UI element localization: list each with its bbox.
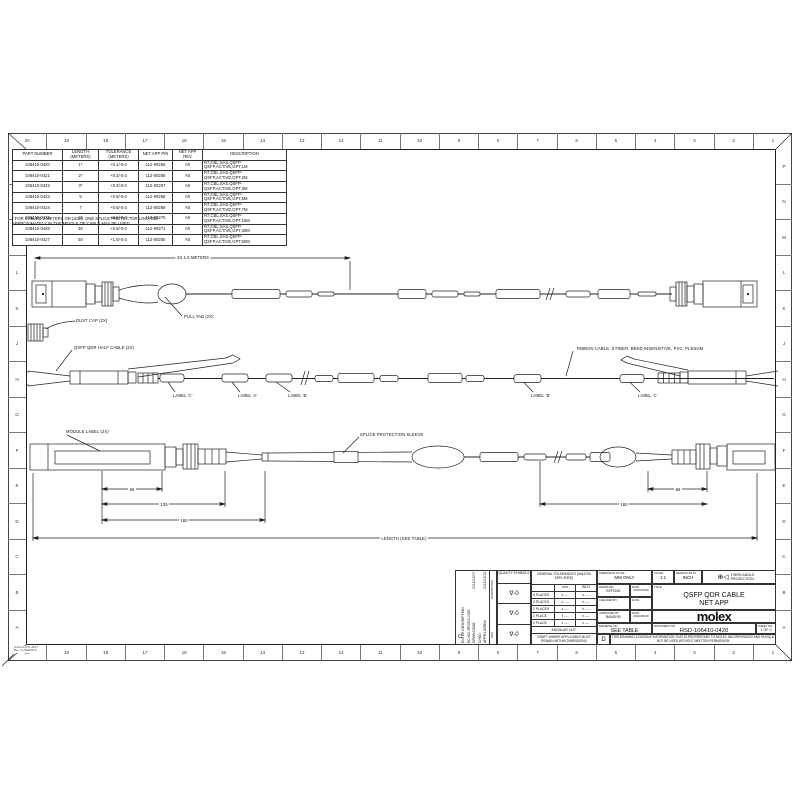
zone-number: 6 bbox=[558, 645, 597, 661]
drawn-by-value: EEFUNG bbox=[598, 589, 629, 593]
ribbon-cable-callout: RIBBON CABLE, 8 FIBER, BEND INSENSITIVE,… bbox=[577, 346, 703, 351]
table-cell: +1.0/-0.0 bbox=[99, 235, 139, 246]
zone-letter: H bbox=[776, 362, 792, 398]
zone-letter: E bbox=[776, 469, 792, 505]
half-cable-callout: QSFP QDR HALF CABLE (2X) bbox=[74, 345, 134, 350]
table-cell: 106410-0420 bbox=[13, 160, 63, 171]
zone-letter: A bbox=[8, 611, 26, 646]
zone-number: 14 bbox=[244, 133, 283, 149]
zone-number: 20 bbox=[8, 133, 47, 149]
zone-letter: H bbox=[8, 362, 26, 398]
zone-letter: A bbox=[776, 611, 792, 646]
zone-number: 3 bbox=[675, 645, 714, 661]
checked-by-label: CHECKED BY bbox=[598, 598, 629, 602]
zone-letter: L bbox=[776, 256, 792, 292]
zone-strip-bottom: 2019181716151413121110987654321 bbox=[8, 645, 792, 661]
col-mm: mm bbox=[555, 585, 575, 591]
zone-number: 11 bbox=[361, 645, 400, 661]
molex-logo: molex bbox=[697, 611, 732, 623]
zone-number: 13 bbox=[283, 645, 322, 661]
zone-number: 16 bbox=[165, 645, 204, 661]
projection-label: THIRD ANGLE PROJECTION bbox=[731, 573, 761, 582]
table-footnote: * FOR CABLES 3 METERS OR LESS, ONE SPLIC… bbox=[12, 216, 167, 227]
dust-cap-callout: DUST CAP (2X) bbox=[76, 318, 107, 323]
zone-number: 3 bbox=[675, 133, 714, 149]
zone-number: 6 bbox=[558, 133, 597, 149]
length-see-table: LENGTH (SEE TABLE) bbox=[380, 536, 428, 541]
module-label-callout: MODULE LABEL (2X) bbox=[66, 429, 109, 434]
table-cell: 112-00269 bbox=[139, 203, 173, 214]
zone-number: 1 bbox=[754, 645, 792, 661]
label-c-left: LABEL 'C' bbox=[173, 393, 193, 398]
dimension-style-cell: DIMENSION STYLE MM ONLY bbox=[597, 570, 652, 584]
table-cell: R7,CBL,SAS,QSFP-QSFP,ACTIVE,OPT,15M bbox=[203, 213, 287, 224]
table-cell: 106410-0424 bbox=[13, 203, 63, 214]
dim-135: 135 bbox=[159, 502, 169, 507]
approved-by-value: BANDREI bbox=[598, 615, 629, 619]
zone-number: 8 bbox=[479, 645, 518, 661]
col-description: DESCRIPTION bbox=[203, 150, 287, 161]
dim-65-left: 65 bbox=[128, 487, 136, 492]
approved-by-cell: APPROVED BY BANDREI bbox=[597, 610, 630, 623]
table-cell: 106410-0427 bbox=[13, 235, 63, 246]
zone-letter: E bbox=[8, 469, 26, 505]
zone-letter: J bbox=[8, 327, 26, 363]
tolerance-row: 3 PLACES± ----± ---- bbox=[532, 599, 596, 606]
table-cell: +0.1/-0.0 bbox=[99, 160, 139, 171]
molex-logo-cell: molex bbox=[652, 610, 776, 623]
scale-value: 1:1 bbox=[653, 575, 673, 580]
approved-date-cell: DATE 2012/06/18 bbox=[630, 610, 652, 623]
quality-symbols-block: QUALITY SYMBOLS ∇-0∇-0∇-0 bbox=[497, 570, 531, 645]
drawing-title: QSFP QDR CABLE NET APP bbox=[653, 592, 775, 609]
tolerance-row: 4 PLACES± ----± ---- bbox=[532, 592, 596, 599]
label-b-right: LABEL 'B' bbox=[531, 393, 550, 398]
quality-symbol: ∇-0 bbox=[498, 625, 530, 644]
table-cell: 50 bbox=[63, 235, 99, 246]
dimension-style-value: MM ONLY bbox=[598, 575, 651, 580]
revision-description-label: DESCRIPTION bbox=[490, 580, 494, 599]
table-cell: R7,CBL,SAS,QSFP-QSFP,ACTIVE,OPT,30M bbox=[203, 224, 287, 235]
proprietary-note: THIS DRAWING CONTAINS INFORMATION THAT I… bbox=[611, 635, 775, 643]
zone-letter: D bbox=[8, 504, 26, 540]
tolerances-header: mm INCH bbox=[532, 585, 596, 592]
quality-symbols-label: QUALITY SYMBOLS bbox=[498, 571, 530, 584]
table-cell: 112-00280 bbox=[139, 235, 173, 246]
table-cell: +0.2/-0.0 bbox=[99, 171, 139, 182]
zone-number: 2 bbox=[715, 645, 754, 661]
zone-letter: P bbox=[776, 149, 792, 185]
zone-number: 9 bbox=[440, 645, 479, 661]
material-cell: MATERIAL NO. SEE TABLE bbox=[597, 623, 652, 634]
size-letter-cell: D bbox=[597, 634, 610, 645]
projection-cell: ⊕◁ THIRD ANGLE PROJECTION bbox=[702, 570, 776, 584]
draft-note: DRAFT WHERE APPLICABLE MUST REMAIN WITHI… bbox=[532, 634, 596, 643]
zone-letter: G bbox=[8, 398, 26, 434]
table-cell: 2* bbox=[63, 171, 99, 182]
table-cell: R7,CBL,SAS,QSFP-QSFP,ACTIVE,OPT,50M bbox=[203, 235, 287, 246]
table-cell: A0 bbox=[173, 224, 203, 235]
zone-number: 8 bbox=[479, 133, 518, 149]
zone-number: 9 bbox=[440, 133, 479, 149]
zone-number: 18 bbox=[87, 133, 126, 149]
overall-length-dimension: 2X 1.5 METERS bbox=[175, 255, 210, 260]
quality-symbol: ∇-0 bbox=[498, 604, 530, 624]
zone-number: 2 bbox=[715, 133, 754, 149]
zone-number: 19 bbox=[47, 645, 86, 661]
date-label: DATE bbox=[631, 598, 651, 602]
title-label: TITLE bbox=[653, 585, 775, 589]
table-cell: A0 bbox=[173, 213, 203, 224]
revision-rev-label: REV bbox=[490, 632, 494, 638]
sheet-no-cell: SHEET NO. 1 OF 2 bbox=[756, 623, 776, 634]
table-cell: 112-00266 bbox=[139, 171, 173, 182]
col-netapp-pn: NET APP P/N bbox=[139, 150, 173, 161]
zone-letter: K bbox=[8, 291, 26, 327]
drawn-date-value: 2012/03/30 bbox=[631, 589, 651, 593]
zone-number: 1 bbox=[754, 133, 792, 149]
table-cell: 112-00265 bbox=[139, 160, 173, 171]
table-cell: +0.5/-0.0 bbox=[99, 192, 139, 203]
checked-by-cell: CHECKED BY bbox=[597, 597, 630, 610]
table-cell: A0 bbox=[173, 192, 203, 203]
zone-number: 11 bbox=[361, 133, 400, 149]
table-cell: 112-00267 bbox=[139, 181, 173, 192]
table-cell: A0 bbox=[173, 160, 203, 171]
drawn-by-cell: DRAWN BY EEFUNG bbox=[597, 584, 630, 597]
zone-number: 10 bbox=[401, 645, 440, 661]
col-part-number: PART NUMBER bbox=[13, 150, 63, 161]
zone-strip-right: PNMLKJHGFEDCBA bbox=[776, 149, 792, 645]
col-tolerance: TOLERANCE (METERS) bbox=[99, 150, 139, 161]
label-b-left: LABEL 'B' bbox=[288, 393, 307, 398]
tolerances-title: GENERAL TOLERANCES (UNLESS SPECIFIED) bbox=[532, 571, 596, 585]
drawing-sheet: 2019181716151413121110987654321 20191817… bbox=[0, 0, 800, 800]
zone-number: 5 bbox=[597, 645, 636, 661]
pull-tab-callout: PULL TAB (2X) bbox=[184, 314, 214, 319]
frame-note: A-Frame D.P. AM-7 Rev. G 2012/01/17 bbox=[13, 646, 39, 653]
zone-number: 16 bbox=[165, 133, 204, 149]
parts-table: PART NUMBER LENGTH (METERS) TOLERANCE (M… bbox=[12, 149, 287, 246]
table-cell: R7,CBL,SAS,QSFP-QSFP,ACTIVE,OPT,1M bbox=[203, 160, 287, 171]
col-length: LENGTH (METERS) bbox=[63, 150, 99, 161]
dim-180-right: 180 bbox=[619, 502, 629, 507]
zone-letter: C bbox=[776, 540, 792, 576]
drawn-date-cell: DATE 2012/03/30 bbox=[630, 584, 652, 597]
design-units-value: INCH bbox=[675, 575, 701, 580]
tolerance-row: 1 PLACE± ----± ---- bbox=[532, 613, 596, 620]
design-units-cell: DESIGN UNITS INCH bbox=[674, 570, 702, 584]
table-row: 106410-04247+0.5/-0.0112-00269A0R7,CBL,S… bbox=[13, 203, 287, 214]
table-cell: 112-00268 bbox=[139, 192, 173, 203]
document-no-cell: DOCUMENT NO. RSD-106410-0420 bbox=[652, 623, 756, 634]
zone-number: 17 bbox=[126, 133, 165, 149]
zone-letter: N bbox=[776, 185, 792, 221]
sheet-no-value: 1 OF 2 bbox=[757, 628, 775, 632]
title-cell: TITLE QSFP QDR CABLE NET APP bbox=[652, 584, 776, 610]
zone-letter: F bbox=[8, 433, 26, 469]
size-letter: D bbox=[601, 637, 605, 643]
zone-number: 13 bbox=[283, 133, 322, 149]
zone-number: 15 bbox=[204, 133, 243, 149]
zone-letter: F bbox=[776, 433, 792, 469]
zone-number: 18 bbox=[87, 645, 126, 661]
zone-letter: B bbox=[776, 575, 792, 611]
zone-number: 4 bbox=[636, 133, 675, 149]
label-a: LABEL 'A' bbox=[238, 393, 257, 398]
dim-65-right: 65 bbox=[674, 487, 682, 492]
zone-number: 4 bbox=[636, 645, 675, 661]
zone-number: 17 bbox=[126, 645, 165, 661]
dim-180-left: 180 bbox=[179, 518, 189, 523]
table-row: 106410-042750+1.0/-0.0112-00280A0R7,CBL,… bbox=[13, 235, 287, 246]
label-c-right: LABEL 'C' bbox=[638, 393, 658, 398]
zone-number: 14 bbox=[244, 645, 283, 661]
table-cell: 7 bbox=[63, 203, 99, 214]
zone-number: 12 bbox=[322, 645, 361, 661]
table-cell: A0 bbox=[173, 203, 203, 214]
revision-letter: C bbox=[458, 634, 462, 640]
material-value: SEE TABLE bbox=[598, 628, 651, 634]
table-cell: 1* bbox=[63, 160, 99, 171]
zone-letter: J bbox=[776, 327, 792, 363]
table-cell: A0 bbox=[173, 171, 203, 182]
table-row: 106410-04235+0.5/-0.0112-00268A0R7,CBL,S… bbox=[13, 192, 287, 203]
table-cell: A0 bbox=[173, 235, 203, 246]
tolerance-row: 0 PLACE± ----± ---- bbox=[532, 620, 596, 627]
table-header-row: PART NUMBER LENGTH (METERS) TOLERANCE (M… bbox=[13, 150, 287, 161]
zone-number: 15 bbox=[204, 645, 243, 661]
table-row: 106410-04212*+0.2/-0.0112-00266A0R7,CBL,… bbox=[13, 171, 287, 182]
zone-letter: L bbox=[8, 256, 26, 292]
zone-number: 5 bbox=[597, 133, 636, 149]
table-cell: 106410-0423 bbox=[13, 192, 63, 203]
zone-letter: D bbox=[776, 504, 792, 540]
zone-letter: K bbox=[776, 291, 792, 327]
scale-cell: SCALE 1:1 bbox=[652, 570, 674, 584]
table-cell: R7,CBL,SAS,QSFP-QSFP,ACTIVE,OPT,3M bbox=[203, 181, 287, 192]
zone-number: 12 bbox=[322, 133, 361, 149]
quality-symbol: ∇-0 bbox=[498, 584, 530, 604]
zone-number: 7 bbox=[518, 645, 557, 661]
zone-letter: C bbox=[8, 540, 26, 576]
approved-date-value: 2012/06/18 bbox=[631, 615, 651, 619]
table-cell: 106410-0422 bbox=[13, 181, 63, 192]
table-cell: +0.3/-0.0 bbox=[99, 181, 139, 192]
table-cell: 106410-0421 bbox=[13, 171, 63, 182]
revision-entries: ENTER DESCRIPTIONEC NO: RF2903-0339DRWN:… bbox=[461, 572, 489, 643]
zone-number: 7 bbox=[518, 133, 557, 149]
proprietary-cell: THIS DRAWING CONTAINS INFORMATION THAT I… bbox=[610, 634, 776, 645]
general-tolerances-block: GENERAL TOLERANCES (UNLESS SPECIFIED) mm… bbox=[531, 570, 597, 645]
checked-date-cell: DATE bbox=[630, 597, 652, 610]
angular-tolerance: ANGULAR ±1/2° bbox=[532, 627, 596, 634]
col-netapp-rev: NET APP REV bbox=[173, 150, 203, 161]
tolerance-row: 2 PLACES± ----± ---- bbox=[532, 606, 596, 613]
zone-number: 10 bbox=[401, 133, 440, 149]
zone-number: 19 bbox=[47, 133, 86, 149]
zone-letter: B bbox=[8, 575, 26, 611]
revision-entry: APPR:LIGREA2012/12/13 bbox=[483, 572, 489, 643]
table-cell: R7,CBL,SAS,QSFP-QSFP,ACTIVE,OPT,5M bbox=[203, 192, 287, 203]
table-cell: 5 bbox=[63, 192, 99, 203]
zone-letter: M bbox=[776, 220, 792, 256]
zone-letter: G bbox=[776, 398, 792, 434]
table-cell: A0 bbox=[173, 181, 203, 192]
table-cell: R7,CBL,SAS,QSFP-QSFP,ACTIVE,OPT,7M bbox=[203, 203, 287, 214]
third-angle-projection-icon: ⊕◁ bbox=[717, 573, 728, 581]
table-row: 106410-04223*+0.3/-0.0112-00267A0R7,CBL,… bbox=[13, 181, 287, 192]
zone-strip-top: 2019181716151413121110987654321 bbox=[8, 133, 792, 149]
table-cell: +0.5/-0.0 bbox=[99, 203, 139, 214]
col-inch: INCH bbox=[576, 585, 596, 591]
table-cell: R7,CBL,SAS,QSFP-QSFP,ACTIVE,OPT,2M bbox=[203, 171, 287, 182]
splice-sleeve-callout: SPLICE PROTECTION SLEEVE bbox=[360, 432, 423, 437]
table-cell: 3* bbox=[63, 181, 99, 192]
table-row: 106410-04201*+0.1/-0.0112-00265A0R7,CBL,… bbox=[13, 160, 287, 171]
